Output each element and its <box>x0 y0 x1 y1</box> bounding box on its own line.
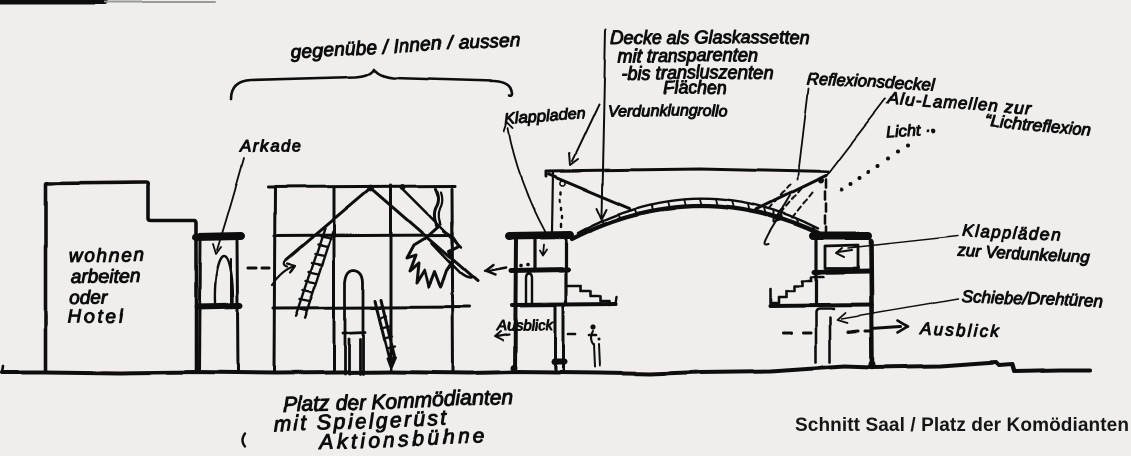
svg-text:gegenübe / Innen / aussen: gegenübe / Innen / aussen <box>290 30 521 63</box>
svg-text:Decke als Glaskassetten: Decke als Glaskassetten <box>611 28 809 48</box>
svg-text:Licht ·: Licht · <box>886 122 931 142</box>
svg-text:zur Verdunkelung: zur Verdunkelung <box>956 241 1091 267</box>
svg-text:“Lichtreflexion: “Lichtreflexion <box>985 111 1092 139</box>
svg-text:wohnen: wohnen <box>69 245 146 267</box>
svg-text:Verdunklungrollo: Verdunklungrollo <box>608 103 728 120</box>
svg-text:Ausblick: Ausblick <box>919 319 1002 341</box>
svg-text:Arkade: Arkade <box>239 137 302 156</box>
svg-text:arbeiten: arbeiten <box>71 266 140 288</box>
svg-text:Flächen: Flächen <box>663 78 727 98</box>
svg-text:Klappladen: Klappladen <box>504 105 585 128</box>
svg-text:Hotel: Hotel <box>68 306 126 328</box>
svg-text:Schiebe/Drehtüren: Schiebe/Drehtüren <box>961 287 1103 311</box>
svg-text:Schnitt Saal / Platz der Komöd: Schnitt Saal / Platz der Komödianten <box>795 415 1129 436</box>
svg-text:Ausblick: Ausblick <box>496 317 554 334</box>
svg-text:Aktionsbühne: Aktionsbühne <box>317 425 488 454</box>
